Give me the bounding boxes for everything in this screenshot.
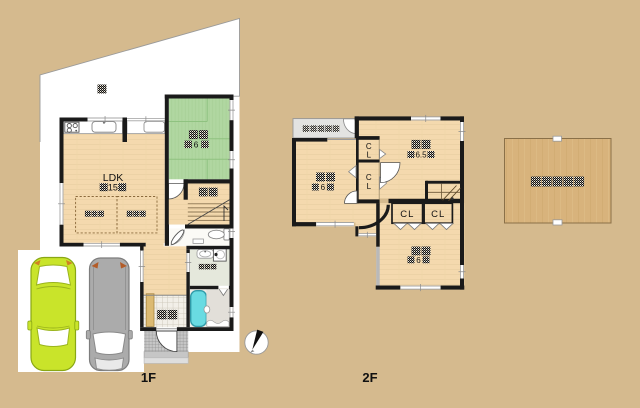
- svg-text:6: 6: [194, 139, 199, 149]
- svg-text:2F: 2F: [362, 370, 377, 385]
- svg-text:C: C: [366, 142, 372, 151]
- svg-text:L: L: [367, 182, 372, 191]
- svg-text:L: L: [367, 151, 372, 160]
- svg-text:C: C: [366, 173, 372, 182]
- svg-text:CL: CL: [431, 209, 445, 220]
- svg-text:6: 6: [321, 183, 326, 192]
- svg-text:15: 15: [108, 182, 118, 192]
- svg-text:6: 6: [416, 256, 421, 265]
- svg-text:6.5: 6.5: [415, 151, 427, 160]
- svg-text:1F: 1F: [141, 370, 156, 385]
- svg-text:CL: CL: [400, 209, 414, 220]
